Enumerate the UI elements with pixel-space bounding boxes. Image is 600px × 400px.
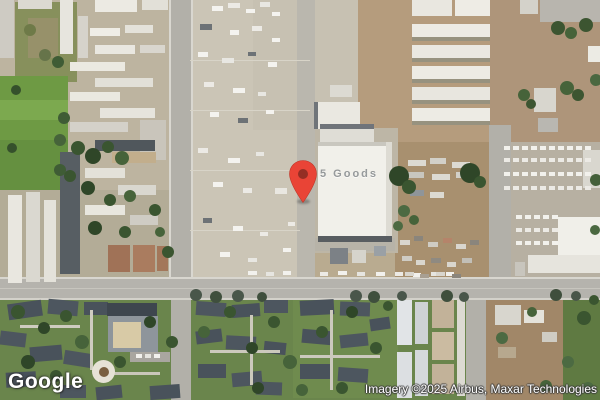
map-buildings-patch [538,118,558,132]
map-car_rows-patch [567,158,573,162]
map-trees-patch [590,225,600,235]
map-roads-patch [190,230,300,231]
map-buildings-patch [125,25,153,33]
map-roads-patch [489,125,511,298]
map-buildings-patch [95,385,122,400]
rooftop-text: 5 Goods [320,168,392,180]
map-buildings-patch [140,45,165,53]
map-trees-patch [590,74,600,86]
map-roads-patch [191,0,193,285]
map-car_rows-patch [552,241,558,245]
map-trees-patch [397,291,407,301]
map-trees-patch [210,291,222,303]
map-buildings-patch [90,28,120,36]
map-trees-patch [38,322,50,334]
map-paths-patch [300,355,380,358]
map-vehicles-patch [283,248,291,252]
map-buildings-patch [330,248,348,264]
map-trees-patch [88,221,102,235]
map-trees-patch [336,382,348,394]
map-roads-patch [0,298,600,300]
map-trees-patch [474,176,486,188]
map-buildings-patch [412,100,490,104]
map-car_rows-patch [531,146,537,150]
map-trees-patch [589,295,599,305]
map-buildings-patch [108,245,130,272]
map-trees-patch [383,301,393,311]
map-roads-patch [0,277,600,279]
map-trees-patch [398,205,410,217]
map-vehicles-patch [222,58,234,63]
map-buildings-patch [18,0,52,9]
map-car_rows-patch [513,186,519,190]
map-trees-patch [114,356,126,368]
map-car_rows-patch [504,146,510,150]
map-trees-patch [75,335,89,349]
map-vehicles-patch [376,272,385,276]
map-buildings-patch [455,0,490,16]
map-vehicles-patch [248,271,257,275]
map-trees-patch [7,143,17,153]
map-buildings-patch [85,168,125,178]
map-roads-patch [190,60,310,61]
map-misc-patch [99,367,109,377]
map-car_rows-patch [516,241,522,245]
map-buildings-patch [528,255,600,273]
map-vehicles-patch [260,232,268,236]
map-car_rows-patch [585,172,591,176]
map-car_rows-patch [567,146,573,150]
map-buildings-patch [542,332,557,342]
map-car_rows-patch [540,172,546,176]
map-buildings-patch [78,16,88,58]
map-buildings-patch [588,46,600,62]
map-trees-patch [54,134,66,146]
map-vehicles-patch [243,188,252,193]
map-vehicles-patch [230,30,239,35]
map-buildings-patch [100,108,155,118]
map-vehicles-patch [452,274,461,278]
map-vehicles-patch [233,226,243,231]
map-car_rows-patch [567,172,573,176]
map-trees-patch [54,164,66,176]
map-trees-patch [198,326,210,338]
map-trees-patch [224,306,236,318]
map-buildings-patch [412,37,490,41]
map-vehicles-patch [145,354,151,358]
map-car_rows-patch [540,158,546,162]
map-buildings-patch [84,302,108,315]
map-trees-patch [124,190,136,202]
map-trees-patch [60,310,72,322]
map-car_rows-patch [504,158,510,162]
map-trees-patch [257,292,267,302]
map-vehicles-patch [430,192,444,198]
map-vehicles-patch [414,236,423,241]
map-trees-patch [166,336,178,348]
map-vehicles-patch [408,160,426,166]
map-car_rows-patch [549,146,555,150]
map-vehicles-patch [210,112,219,117]
map-buildings-patch [412,121,490,125]
map-buildings-patch [113,322,141,348]
map-vehicles-patch [275,188,287,194]
map-buildings-patch [150,384,181,400]
map-vehicles-patch [400,240,410,245]
map-vehicles-patch [416,260,425,265]
map-vehicles-patch [266,272,274,276]
map-canvas[interactable]: 5 Goods Google Imagery ©2025 Airbus, Max… [0,0,600,400]
map-car_rows-patch [540,186,546,190]
map-buildings-patch [495,305,521,325]
map-car_rows-patch [558,172,564,176]
map-buildings-patch [95,78,153,87]
map-buildings-patch [85,205,125,215]
map-trees-patch [550,289,562,301]
map-vehicles-patch [357,272,365,276]
map-car_rows-patch [525,241,531,245]
map-buildings-patch [70,122,128,132]
map-vehicles-patch [260,2,270,7]
map-vehicles-patch [248,52,256,56]
map-buildings-patch [498,347,516,358]
map-roads-patch [190,170,300,171]
map-buildings-patch [520,0,538,14]
map-trees-patch [115,151,129,165]
map-trees-patch [162,246,174,258]
map-paths-patch [90,310,93,370]
map-roads-patch [297,0,315,284]
map-vehicles-patch [268,62,277,67]
map-buildings-patch [0,0,14,58]
map-vehicles-patch [258,92,266,96]
map-vehicles-patch [154,354,160,358]
map-pin-icon [289,160,317,203]
map-buildings-patch [374,246,386,256]
map-buildings-patch [26,192,40,282]
map-trees-patch [102,141,114,153]
map-vehicles-patch [252,26,262,31]
map-vehicles-patch [462,258,472,263]
map-trees-patch [52,56,64,68]
map-car_rows-patch [534,228,540,232]
map-vehicles-patch [256,152,264,156]
map-buildings-patch [95,45,135,54]
map-vehicles-patch [203,218,212,223]
map-car_rows-patch [522,172,528,176]
map-trees-patch [81,181,95,195]
map-car_rows-patch [585,186,591,190]
map-buildings-patch [352,250,366,263]
map-trees-patch [252,382,264,394]
map-marker[interactable] [289,160,317,203]
map-buildings-patch [412,79,490,83]
map-vehicles-patch [443,238,452,243]
map-trees-patch [268,316,280,328]
map-buildings-patch [338,367,369,383]
map-car_rows-patch [558,158,564,162]
map-car_rows-patch [552,215,558,219]
map-buildings-patch [318,142,392,240]
map-car_rows-patch [513,158,519,162]
map-car_rows-patch [513,146,519,150]
map-buildings-patch [412,24,490,37]
map-vehicles-patch [198,52,208,57]
map-buildings-patch [386,142,392,240]
map-vehicles-patch [283,271,291,275]
map-car_rows-patch [513,172,519,176]
map-buildings-patch [133,245,155,272]
map-vehicles-patch [228,3,240,8]
map-buildings-patch [70,62,125,71]
map-trees-patch [370,342,382,354]
map-vehicles-patch [200,24,212,30]
map-roads-patch [190,110,310,111]
map-vehicles-patch [338,271,347,275]
map-vehicles-patch [408,172,424,178]
map-vehicles-patch [136,354,142,358]
map-trees-patch [85,148,101,164]
map-vehicles-patch [436,272,445,276]
map-buildings-patch [44,200,56,282]
map-buildings-patch [534,88,556,112]
map-trees-patch [104,194,116,206]
map-trees-patch [149,204,161,216]
map-vehicles-patch [320,272,328,276]
map-trees-patch [590,174,600,186]
map-trees-patch [346,306,358,318]
map-car_rows-patch [552,228,558,232]
map-trees-patch [459,292,469,302]
map-car_rows-patch [576,158,582,162]
map-trees-patch [64,170,76,182]
map-car_rows-patch [585,158,591,162]
map-car_rows-patch [543,241,549,245]
map-car_rows-patch [516,215,522,219]
map-buildings-patch [107,303,157,316]
map-trees-patch [144,316,156,328]
map-car_rows-patch [567,186,573,190]
map-trees-patch [402,180,416,194]
map-trees-patch [58,112,70,124]
map-trees-patch [283,355,297,369]
map-buildings-patch [397,300,412,345]
map-trees-patch [579,18,593,32]
map-car_rows-patch [522,146,528,150]
map-trees-patch [527,307,537,317]
map-car_rows-patch [558,186,564,190]
map-buildings-patch [412,66,490,79]
map-car_rows-patch [504,172,510,176]
map-vehicles-patch [248,258,257,262]
map-trees-patch [551,21,565,35]
map-vehicles-patch [402,256,412,261]
map-vehicles-patch [428,242,438,247]
map-trees-patch [571,291,581,301]
map-trees-patch [39,49,51,61]
map-vehicles-patch [228,158,240,163]
map-car_rows-patch [543,215,549,219]
map-trees-patch [246,342,258,354]
map-car_rows-patch [531,186,537,190]
map-buildings-patch [412,87,490,100]
map-vehicles-patch [198,148,208,153]
map-vehicles-patch [420,274,429,278]
map-car_rows-patch [534,241,540,245]
map-trees-patch [441,290,453,302]
map-trees-patch [155,227,165,237]
map-buildings-patch [320,124,374,129]
map-trees-patch [21,355,35,369]
map-vehicles-patch [272,38,280,42]
map-trees-patch [526,99,536,109]
map-trees-patch [496,332,508,344]
map-car_rows-patch [576,186,582,190]
map-buildings-patch [198,364,226,378]
map-buildings-patch [432,332,454,360]
map-car_rows-patch [540,146,546,150]
map-car_rows-patch [504,186,510,190]
map-vehicles-patch [447,262,456,267]
map-vehicles-patch [238,118,248,123]
map-vehicles-patch [431,258,441,263]
map-vehicles-patch [246,9,255,13]
map-terrain-patch [540,0,600,22]
map-trees-patch [24,24,36,36]
map-vehicles-patch [233,88,245,93]
map-trees-patch [71,141,85,155]
map-car_rows-patch [525,215,531,219]
map-car_rows-patch [522,158,528,162]
map-trees-patch [572,89,584,101]
map-trees-patch [562,356,574,368]
map-trees-patch [11,305,25,319]
map-vehicles-patch [212,6,223,11]
map-car_rows-patch [576,146,582,150]
map-vehicles-patch [470,240,479,245]
map-buildings-patch [196,301,227,317]
map-paths-patch [330,310,333,390]
map-vehicles-patch [405,272,414,276]
map-trees-patch [393,221,403,231]
map-roads-patch [169,0,171,285]
map-buildings-patch [60,0,73,54]
map-buildings-patch [412,58,490,62]
map-trees-patch [350,290,362,302]
map-buildings-patch [318,236,392,242]
map-buildings-patch [412,0,452,16]
map-car_rows-patch [549,172,555,176]
map-buildings-patch [8,195,22,283]
map-car_rows-patch [525,228,531,232]
map-car_rows-patch [531,158,537,162]
map-vehicles-patch [204,82,214,87]
map-car_rows-patch [522,186,528,190]
map-vehicles-patch [272,12,280,16]
map-buildings-patch [300,364,332,379]
map-trees-patch [577,311,591,325]
map-car_rows-patch [549,186,555,190]
map-vehicles-patch [266,110,274,114]
map-buildings-patch [412,45,490,58]
map-buildings-patch [412,108,490,121]
map-trees-patch [11,85,21,95]
map-car_rows-patch [549,158,555,162]
map-buildings-patch [314,102,318,129]
map-buildings-patch [330,85,352,97]
map-buildings-patch [318,142,392,146]
google-logo[interactable]: Google [8,370,83,394]
map-vehicles-patch [430,158,446,164]
map-vehicles-patch [395,272,403,276]
map-vehicles-patch [288,222,295,226]
map-car_rows-patch [543,228,549,232]
map-trees-patch [565,27,577,39]
map-trees-patch [119,226,131,238]
map-trees-patch [190,289,202,301]
map-vehicles-patch [220,252,230,257]
map-trees-patch [296,384,308,396]
map-vehicles-patch [456,244,466,249]
map-car_rows-patch [531,172,537,176]
map-car_rows-patch [576,172,582,176]
map-buildings-patch [142,0,168,10]
map-buildings-patch [515,262,525,276]
map-buildings-patch [432,300,454,328]
map-car_rows-patch [585,146,591,150]
map-vehicles-patch [432,174,450,180]
map-trees-patch [232,290,244,302]
map-buildings-patch [415,302,428,344]
map-buildings-patch [0,330,27,347]
map-attribution: Imagery ©2025 Airbus, Maxar Technologies [365,382,597,396]
map-trees-patch [316,326,328,338]
map-car_rows-patch [534,215,540,219]
map-buildings-patch [264,300,288,313]
map-paths-patch [210,350,280,353]
map-buildings-patch [70,92,120,101]
map-trees-patch [409,215,419,225]
map-trees-patch [368,291,380,303]
map-buildings-patch [130,215,158,225]
map-car_rows-patch [516,228,522,232]
map-car_rows-patch [558,146,564,150]
map-roads-patch [0,288,600,289]
map-buildings-patch [95,0,137,12]
map-vehicles-patch [213,182,223,187]
map-paths-patch [20,325,80,328]
